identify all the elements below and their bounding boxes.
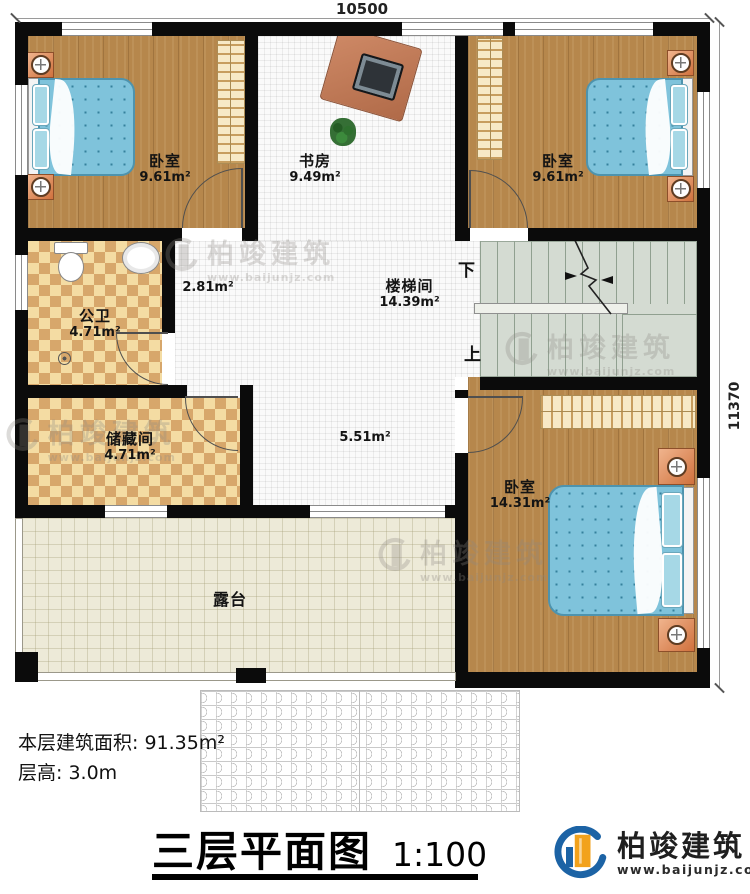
window xyxy=(402,22,503,36)
wall-post xyxy=(15,652,38,682)
door-leaf xyxy=(468,396,523,398)
dimension-right: 11370 xyxy=(727,361,743,451)
wall-post xyxy=(236,668,266,683)
bed xyxy=(548,485,694,616)
room-area: 2.81m² xyxy=(168,280,248,296)
brand-name: 柏竣建筑 xyxy=(617,831,750,861)
wardrobe xyxy=(477,38,503,160)
roof-tiles xyxy=(200,690,520,812)
title-underline xyxy=(152,874,478,880)
wall xyxy=(455,390,468,398)
stair-break-line xyxy=(555,228,635,318)
pillow xyxy=(662,493,682,547)
logo-icon xyxy=(552,826,608,882)
sink-icon xyxy=(122,242,160,274)
wall xyxy=(253,505,310,518)
room-name: 卧室 xyxy=(118,152,212,170)
door-leaf xyxy=(469,170,471,228)
lamp-icon xyxy=(31,55,51,75)
dimension-top: 10500 xyxy=(312,0,412,18)
wall xyxy=(528,228,710,241)
room-name: 卧室 xyxy=(511,152,605,170)
door-leaf xyxy=(185,396,238,398)
pillow xyxy=(33,85,49,125)
window xyxy=(15,85,28,175)
wall xyxy=(240,385,253,518)
room-name: 公卫 xyxy=(48,307,142,325)
lamp-icon xyxy=(31,177,51,197)
room-label-storage: 储藏间 4.71m² xyxy=(83,430,177,464)
corridor-area-label: 2.81m² xyxy=(168,280,248,296)
nightstand xyxy=(658,618,695,652)
brand-url: www.baijunjz.com xyxy=(617,862,750,877)
lamp-icon xyxy=(671,179,691,199)
room-label-bathroom: 公卫 4.71m² xyxy=(48,307,142,341)
room-label-stairwell: 楼梯间 14.39m² xyxy=(352,277,467,311)
wall xyxy=(455,453,468,672)
wall xyxy=(455,672,697,688)
door-leaf xyxy=(241,168,243,228)
room-area: 14.31m² xyxy=(472,496,568,512)
wall xyxy=(245,22,258,241)
toilet-icon xyxy=(52,242,88,282)
dimension-line xyxy=(15,18,710,19)
wall xyxy=(15,385,187,398)
window xyxy=(62,22,152,36)
wall xyxy=(15,228,182,241)
window xyxy=(105,505,167,518)
floor-drain-icon xyxy=(58,352,71,365)
room-name: 储藏间 xyxy=(83,430,177,448)
nightstand xyxy=(27,174,54,200)
wardrobe xyxy=(217,40,245,164)
wall xyxy=(15,505,105,518)
pillow xyxy=(671,129,687,169)
stair-landing xyxy=(622,314,697,377)
sliding-door xyxy=(310,505,445,518)
room-name: 书房 xyxy=(268,152,362,170)
floor-height-text: 层高: 3.0m xyxy=(18,758,117,785)
room-label-terrace: 露台 xyxy=(192,590,268,609)
room-area: 5.51m² xyxy=(325,430,405,446)
room-label-study: 书房 9.49m² xyxy=(268,152,362,186)
pillow xyxy=(671,85,687,125)
hall-area-label: 5.51m² xyxy=(325,430,405,446)
stair-treads-lower xyxy=(480,314,622,377)
pillow xyxy=(662,553,682,607)
stair-up-label: 上 xyxy=(464,340,481,365)
room-label-bedroom-top-left: 卧室 9.61m² xyxy=(118,152,212,186)
room-area: 9.61m² xyxy=(118,170,212,186)
room-label-bedroom-top-right: 卧室 9.61m² xyxy=(511,152,605,186)
drawing-title-text: 三层平面图 xyxy=(152,818,372,879)
nightstand xyxy=(667,176,694,202)
nightstand xyxy=(27,52,54,78)
toilet-bowl xyxy=(58,252,84,282)
wall xyxy=(167,505,253,518)
wall xyxy=(455,22,468,241)
room-area: 4.71m² xyxy=(83,448,177,464)
wall xyxy=(480,377,710,390)
lamp-icon xyxy=(671,53,691,73)
room-name: 楼梯间 xyxy=(352,277,467,295)
drawing-title: 三层平面图 1:100 xyxy=(152,818,487,879)
lamp-icon xyxy=(667,625,687,645)
room-area: 9.61m² xyxy=(511,170,605,186)
dimension-line xyxy=(719,22,720,688)
floor-plan: 柏竣建筑 www.baijunjz.com 柏竣建筑 www.baijunjz.… xyxy=(0,0,750,894)
drawing-scale: 1:100 xyxy=(392,835,487,874)
brand-logo: 柏竣建筑 www.baijunjz.com xyxy=(552,826,750,882)
roof-ridge-line xyxy=(359,690,360,812)
room-label-bedroom-bottom-right: 卧室 14.31m² xyxy=(472,478,568,512)
room-area: 14.39m² xyxy=(352,295,467,311)
nightstand xyxy=(658,448,695,485)
stair-down-label: 下 xyxy=(458,256,475,281)
room-name: 露台 xyxy=(192,590,268,609)
plant-icon xyxy=(330,118,356,146)
lamp-icon xyxy=(667,457,687,477)
room-area: 4.71m² xyxy=(48,325,142,341)
window xyxy=(515,22,653,36)
room-name: 卧室 xyxy=(472,478,568,496)
nightstand xyxy=(667,50,694,76)
window xyxy=(697,92,710,188)
room-area: 9.49m² xyxy=(268,170,362,186)
window xyxy=(697,478,710,648)
window xyxy=(15,255,28,310)
wardrobe xyxy=(540,395,696,429)
wall xyxy=(445,505,468,518)
pillow xyxy=(33,129,49,169)
floor-area-text: 本层建筑面积: 91.35m² xyxy=(18,728,225,755)
